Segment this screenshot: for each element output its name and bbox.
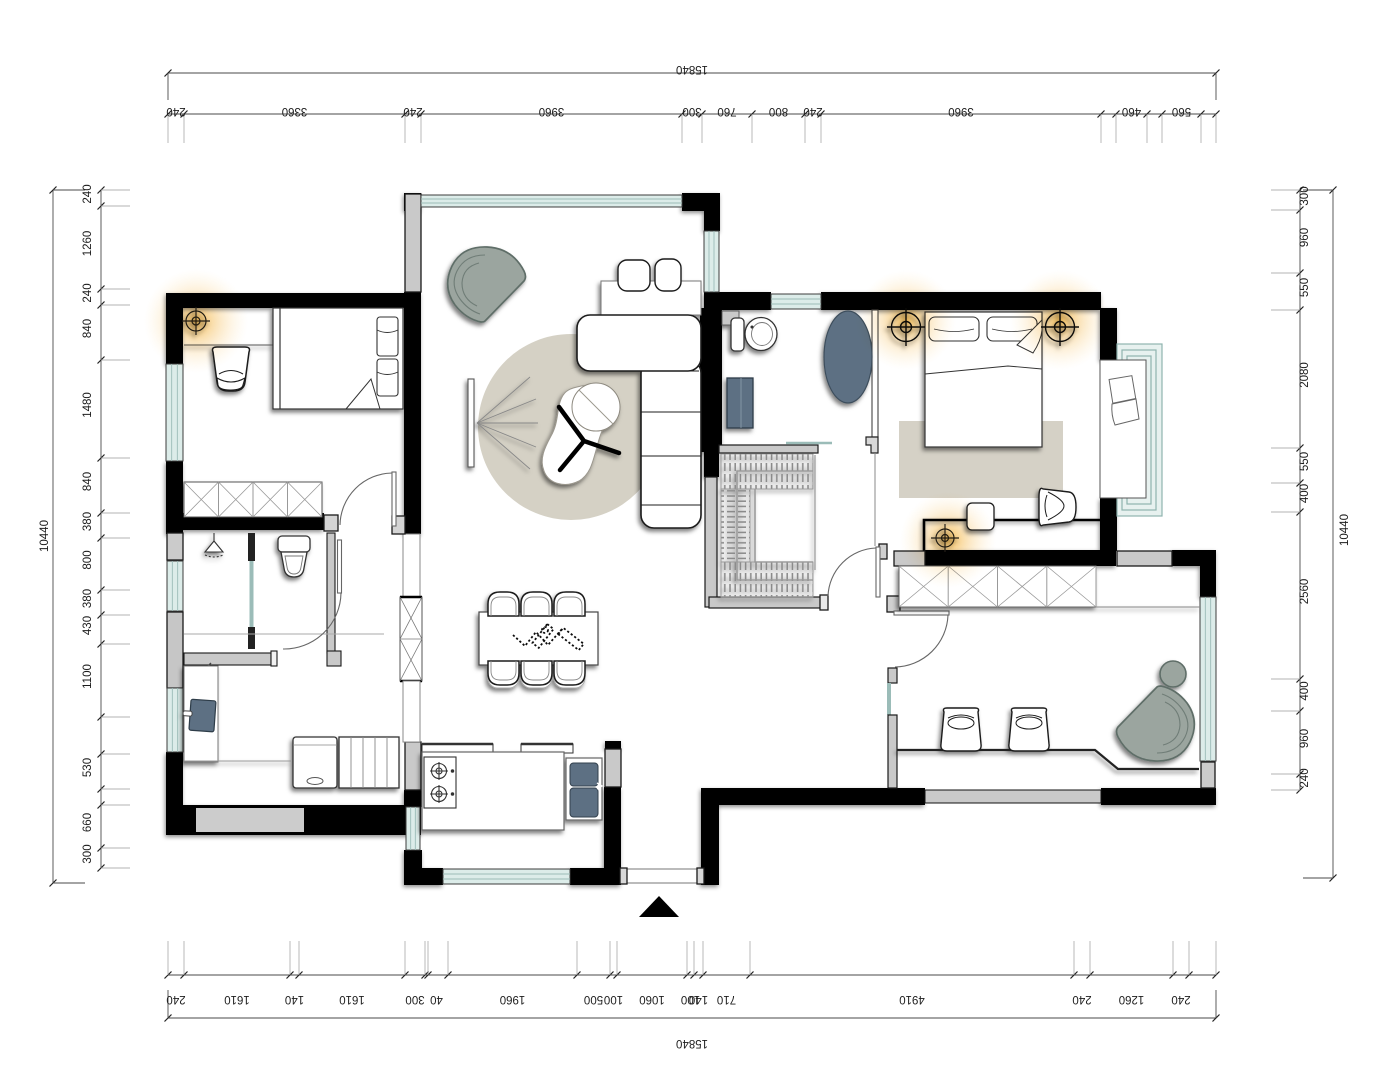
svg-text:240: 240 [1072, 993, 1091, 1005]
svg-text:1960: 1960 [500, 993, 526, 1005]
svg-text:240: 240 [166, 105, 185, 117]
svg-text:100: 100 [604, 993, 623, 1005]
svg-text:240: 240 [1299, 768, 1311, 787]
svg-text:300: 300 [82, 844, 94, 863]
svg-text:3960: 3960 [539, 105, 565, 117]
svg-text:300: 300 [405, 993, 424, 1005]
svg-text:560: 560 [1172, 105, 1191, 117]
svg-text:400: 400 [1299, 484, 1311, 503]
svg-text:1610: 1610 [224, 993, 250, 1005]
svg-text:240: 240 [82, 184, 94, 203]
svg-text:10440: 10440 [39, 520, 51, 552]
svg-text:400: 400 [1299, 681, 1311, 700]
svg-text:1610: 1610 [339, 993, 365, 1005]
svg-text:40: 40 [430, 993, 443, 1005]
svg-text:300: 300 [682, 105, 701, 117]
svg-text:10440: 10440 [1339, 514, 1351, 546]
svg-text:800: 800 [769, 105, 788, 117]
svg-text:3360: 3360 [282, 105, 308, 117]
svg-text:300: 300 [1299, 186, 1311, 205]
svg-text:710: 710 [717, 993, 736, 1005]
svg-text:1480: 1480 [82, 392, 94, 418]
svg-text:960: 960 [1299, 729, 1311, 748]
svg-text:960: 960 [1299, 228, 1311, 247]
svg-text:800: 800 [82, 550, 94, 569]
svg-text:15840: 15840 [676, 1037, 708, 1049]
svg-text:530: 530 [82, 758, 94, 777]
svg-text:240: 240 [166, 993, 185, 1005]
svg-text:550: 550 [1299, 278, 1311, 297]
svg-text:240: 240 [403, 105, 422, 117]
svg-text:4910: 4910 [899, 993, 925, 1005]
svg-text:2560: 2560 [1299, 579, 1311, 605]
svg-text:430: 430 [82, 616, 94, 635]
svg-text:460: 460 [1122, 105, 1141, 117]
svg-text:3960: 3960 [948, 105, 974, 117]
svg-text:1260: 1260 [82, 231, 94, 257]
svg-text:660: 660 [82, 813, 94, 832]
svg-text:760: 760 [717, 105, 736, 117]
svg-text:1260: 1260 [1119, 993, 1145, 1005]
svg-text:840: 840 [82, 472, 94, 491]
svg-text:1060: 1060 [639, 993, 665, 1005]
svg-text:1100: 1100 [82, 664, 94, 689]
svg-text:380: 380 [82, 512, 94, 531]
svg-text:140: 140 [689, 993, 708, 1005]
svg-text:2080: 2080 [1299, 362, 1311, 388]
svg-text:550: 550 [1299, 452, 1311, 471]
svg-text:240: 240 [82, 283, 94, 302]
svg-text:15840: 15840 [676, 63, 708, 75]
svg-text:380: 380 [82, 589, 94, 608]
svg-text:240: 240 [1171, 993, 1190, 1005]
svg-text:140: 140 [285, 993, 304, 1005]
svg-text:240: 240 [803, 105, 822, 117]
svg-text:500: 500 [584, 993, 603, 1005]
svg-text:840: 840 [82, 319, 94, 338]
